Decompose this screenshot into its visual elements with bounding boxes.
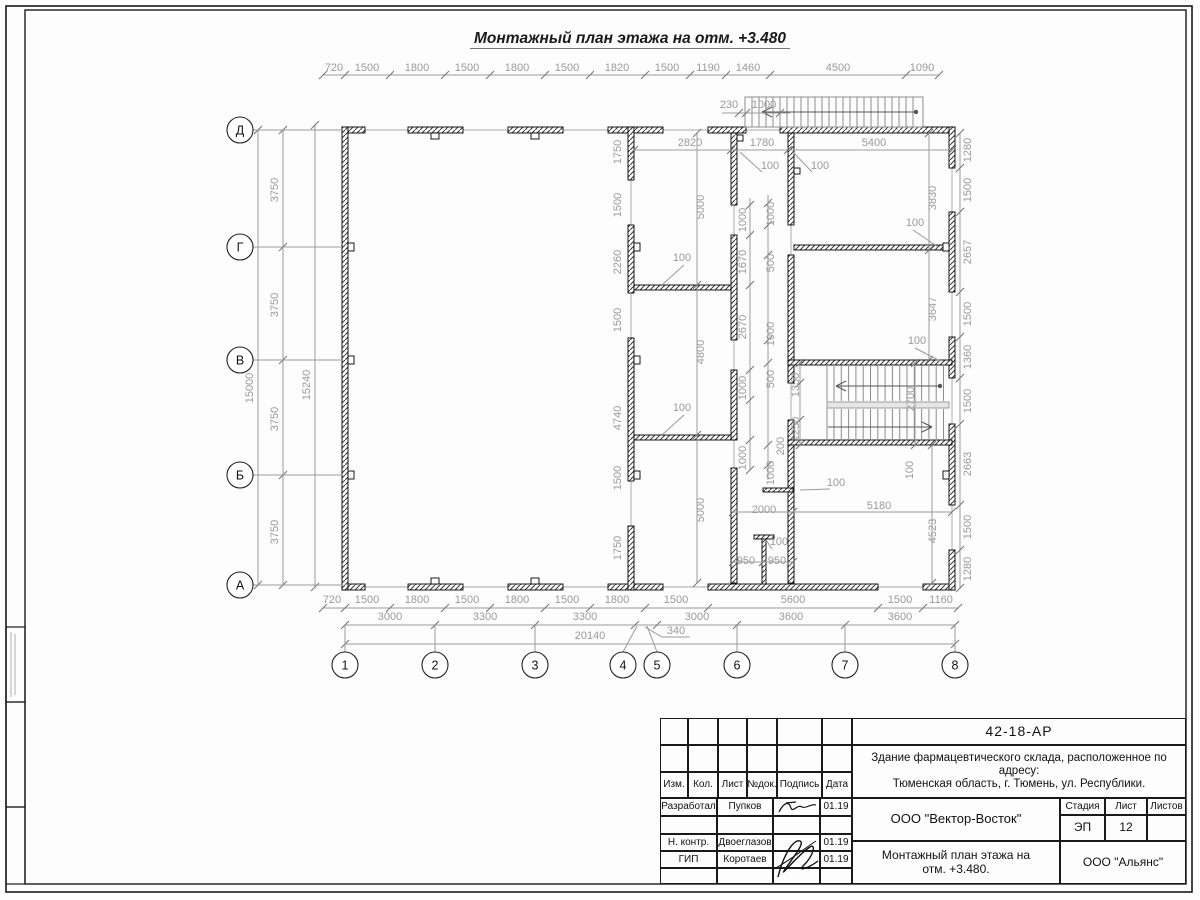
dimension-label: 1000 <box>765 322 777 346</box>
dimension-label: 2700 <box>905 387 917 411</box>
dimension-label: 1160 <box>929 594 953 606</box>
dimension-label: 100 <box>673 402 691 414</box>
dimension-label: 100 <box>827 477 845 489</box>
dimension-label: 1350 <box>790 373 802 397</box>
tb-sheet-label: Лист <box>1105 798 1147 815</box>
tb-empty-cell <box>747 718 777 745</box>
dimension-label: 1500 <box>455 62 479 74</box>
tb-stage-value: ЭП <box>1060 815 1105 841</box>
dimension-lines <box>254 71 964 648</box>
dimension-label: 3600 <box>888 611 912 623</box>
row-axis-label: В <box>236 354 244 368</box>
column-stubs <box>348 133 949 584</box>
dimension-label: 1000 <box>752 99 776 111</box>
dimension-label: 3000 <box>378 611 402 623</box>
row-axis-label: Д <box>236 124 245 138</box>
dimension-label: 1500 <box>555 594 579 606</box>
dimension-label: 3300 <box>473 611 497 623</box>
tb-empty-cell <box>688 718 718 745</box>
dimension-label: 1500 <box>355 62 379 74</box>
dimension-label: 4500 <box>826 62 850 74</box>
tb-header-3: №док. <box>747 772 777 798</box>
dimension-label: 950 <box>768 555 786 567</box>
dimension-label: 200 <box>775 437 787 455</box>
dimension-label: 3830 <box>927 186 939 210</box>
dimension-label: 100 <box>906 217 924 229</box>
tb-sheet-title-line1: Монтажный план этажа на <box>882 849 1030 863</box>
tb-sign-signature <box>773 816 820 834</box>
dimension-label: 1000 <box>737 208 749 232</box>
dimension-label: 3000 <box>685 611 709 623</box>
tb-header-1: Кол. <box>688 772 718 798</box>
tb-sheet-title: Монтажный план этажа наотм. +3.480. <box>852 841 1060 884</box>
tb-empty-cell <box>718 745 747 772</box>
dimension-label: 1750 <box>612 140 624 164</box>
dimension-label: 1500 <box>962 302 974 326</box>
dimension-label: 950 <box>737 555 755 567</box>
dimension-label: 100 <box>761 160 779 172</box>
dimension-label: 500 <box>765 370 777 388</box>
tb-sign-role <box>660 816 717 834</box>
dimension-label: 20140 <box>575 630 606 642</box>
window-lines <box>345 130 952 587</box>
dimension-label: 1250 <box>790 417 802 441</box>
col-axis-label: 3 <box>532 659 539 673</box>
dimension-label: 1500 <box>962 178 974 202</box>
drawing-title: Монтажный план этажа на отм. +3.480 <box>330 30 930 48</box>
tb-sheets-value <box>1147 815 1186 841</box>
col-axis-label: 6 <box>734 659 741 673</box>
tb-object-line1: Здание фармацевтического склада, располо… <box>853 752 1185 778</box>
dimension-label: 1800 <box>505 62 529 74</box>
dimension-label: 1500 <box>962 389 974 413</box>
tb-stage-label: Стадия <box>1060 798 1105 815</box>
dimension-label: 3300 <box>573 611 597 623</box>
row-axis-label: Б <box>236 469 244 483</box>
tb-doc-code: 42-18-АР <box>852 718 1186 745</box>
dimension-label: 1800 <box>405 62 429 74</box>
col-axis-label: 8 <box>952 659 959 673</box>
dimension-label: 2657 <box>962 240 974 264</box>
dimension-label: 1000 <box>737 376 749 400</box>
dimension-label: 2663 <box>962 452 974 476</box>
dimension-label: 230 <box>720 99 738 111</box>
dimension-label: 100 <box>811 160 829 172</box>
dimension-label: 1360 <box>962 345 974 369</box>
tb-empty-cell <box>777 718 822 745</box>
tb-empty-cell <box>688 745 718 772</box>
dimension-label: 3750 <box>269 178 281 202</box>
dimension-label: 2670 <box>737 315 749 339</box>
tb-sign-role: ГИП <box>660 851 717 868</box>
col-axis-label: 4 <box>620 659 627 673</box>
dimension-label: 3647 <box>927 297 939 321</box>
tb-empty-cell <box>822 718 852 745</box>
dimension-label: 1000 <box>737 446 749 470</box>
dimension-label: 3600 <box>779 611 803 623</box>
dimension-label: 1000 <box>765 202 777 226</box>
tb-sign-signature <box>773 851 820 868</box>
dimension-label: 720 <box>323 594 341 606</box>
dimension-label: 100 <box>770 536 788 548</box>
dimension-label: 1500 <box>612 466 624 490</box>
tb-empty-cell <box>660 718 688 745</box>
dimension-label: 1500 <box>655 62 679 74</box>
tb-empty-cell <box>777 745 822 772</box>
tb-sign-name: Коротаев <box>717 851 773 868</box>
dimension-label: 100 <box>904 461 916 479</box>
tb-sign-date: 01.19 <box>820 834 852 851</box>
tb-header-5: Дата <box>822 772 852 798</box>
tb-sign-role: Разработал <box>660 798 717 816</box>
dimension-label: 100 <box>908 335 926 347</box>
col-axis-label: 1 <box>342 659 349 673</box>
dimension-label: 340 <box>667 625 685 637</box>
tb-sign-role: Н. контр. <box>660 834 717 851</box>
dimension-labels: 7201500180015001800150018201500119014604… <box>244 62 974 642</box>
tb-sign-date <box>820 816 852 834</box>
dimension-label: 1500 <box>962 515 974 539</box>
dimension-label: 1750 <box>612 536 624 560</box>
dimension-label: 2000 <box>752 504 776 516</box>
dimension-label: 1800 <box>505 594 529 606</box>
tb-client-org: ООО "Альянс" <box>1060 841 1186 884</box>
dimension-label: 500 <box>765 254 777 272</box>
tb-header-0: Изм. <box>660 772 688 798</box>
tb-empty-cell <box>718 718 747 745</box>
dimension-label: 1670 <box>737 250 749 274</box>
dimension-label: 1280 <box>962 557 974 581</box>
tb-sign-name <box>717 816 773 834</box>
dimension-label: 1090 <box>910 62 934 74</box>
tb-sign-role <box>660 868 717 884</box>
dimension-label: 1800 <box>605 594 629 606</box>
tb-empty-cell <box>747 745 777 772</box>
tb-header-4: Подпись <box>777 772 822 798</box>
col-axis-label: 7 <box>842 659 849 673</box>
dimension-label: 4740 <box>612 406 624 430</box>
drawing-sheet: ДГВБА12345678 72015001800150018001500182… <box>0 0 1200 900</box>
dimension-label: 1500 <box>355 594 379 606</box>
tb-sign-name: Пупков <box>717 798 773 816</box>
row-axis-label: А <box>236 579 245 593</box>
tb-sign-date <box>820 868 852 884</box>
tb-empty-cell <box>660 745 688 772</box>
tb-sign-signature <box>773 868 820 884</box>
dimension-label: 5180 <box>867 500 891 512</box>
tb-sign-name <box>717 868 773 884</box>
col-axis-label: 5 <box>654 659 661 673</box>
dimension-label: 1280 <box>962 138 974 162</box>
drawing-title-text: Монтажный план этажа на отм. +3.480 <box>470 30 790 49</box>
tb-sheets-label: Листов <box>1147 798 1186 815</box>
dimension-label: 1500 <box>555 62 579 74</box>
dimension-label: 2260 <box>612 250 624 274</box>
dimension-label: 1500 <box>612 193 624 217</box>
col-axis-label: 2 <box>432 659 439 673</box>
tb-object: Здание фармацевтического склада, располо… <box>852 745 1186 798</box>
dimension-label: 15000 <box>244 373 256 404</box>
side-stamp <box>6 627 25 884</box>
tb-sign-name: Двоеглазов <box>717 834 773 851</box>
dimension-label: 5000 <box>695 498 707 522</box>
dimension-label: 1500 <box>664 594 688 606</box>
walls <box>342 127 955 590</box>
tb-sign-date: 01.19 <box>820 851 852 868</box>
dimension-label: 15240 <box>301 370 313 401</box>
dimension-label: 4800 <box>695 340 707 364</box>
tb-header-2: Лист <box>718 772 747 798</box>
dimension-label: 1000 <box>765 461 777 485</box>
tb-sign-signature <box>773 798 820 816</box>
dimension-label: 1500 <box>455 594 479 606</box>
dimension-label: 3750 <box>269 407 281 431</box>
dimension-label: 1460 <box>736 62 760 74</box>
tb-sign-date: 01.19 <box>820 798 852 816</box>
dimension-label: 1500 <box>888 594 912 606</box>
tb-sign-signature <box>773 834 820 851</box>
dimension-label: 3750 <box>269 520 281 544</box>
dimension-label: 100 <box>673 252 691 264</box>
dimension-label: 3750 <box>269 293 281 317</box>
tb-empty-cell <box>822 745 852 772</box>
tb-designer-org: ООО "Вектор-Восток" <box>852 798 1060 841</box>
dimension-label: 1800 <box>405 594 429 606</box>
dimension-label: 5000 <box>695 195 707 219</box>
dimension-label: 1780 <box>750 137 774 149</box>
dimension-label: 2820 <box>678 137 702 149</box>
dimension-label: 1190 <box>696 62 720 74</box>
dimension-label: 5400 <box>862 137 886 149</box>
dimension-label: 720 <box>325 62 343 74</box>
dimension-label: 5600 <box>781 594 805 606</box>
dimension-label: 4523 <box>927 519 939 543</box>
dimension-label: 1500 <box>612 308 624 332</box>
tb-sheet-value: 12 <box>1105 815 1147 841</box>
tb-object-line2: Тюменская область, г. Тюмень, ул. Респуб… <box>853 778 1185 791</box>
tb-sheet-title-line2: отм. +3.480. <box>882 863 1030 877</box>
dimension-label: 1820 <box>605 62 629 74</box>
row-axis-label: Г <box>237 241 244 255</box>
